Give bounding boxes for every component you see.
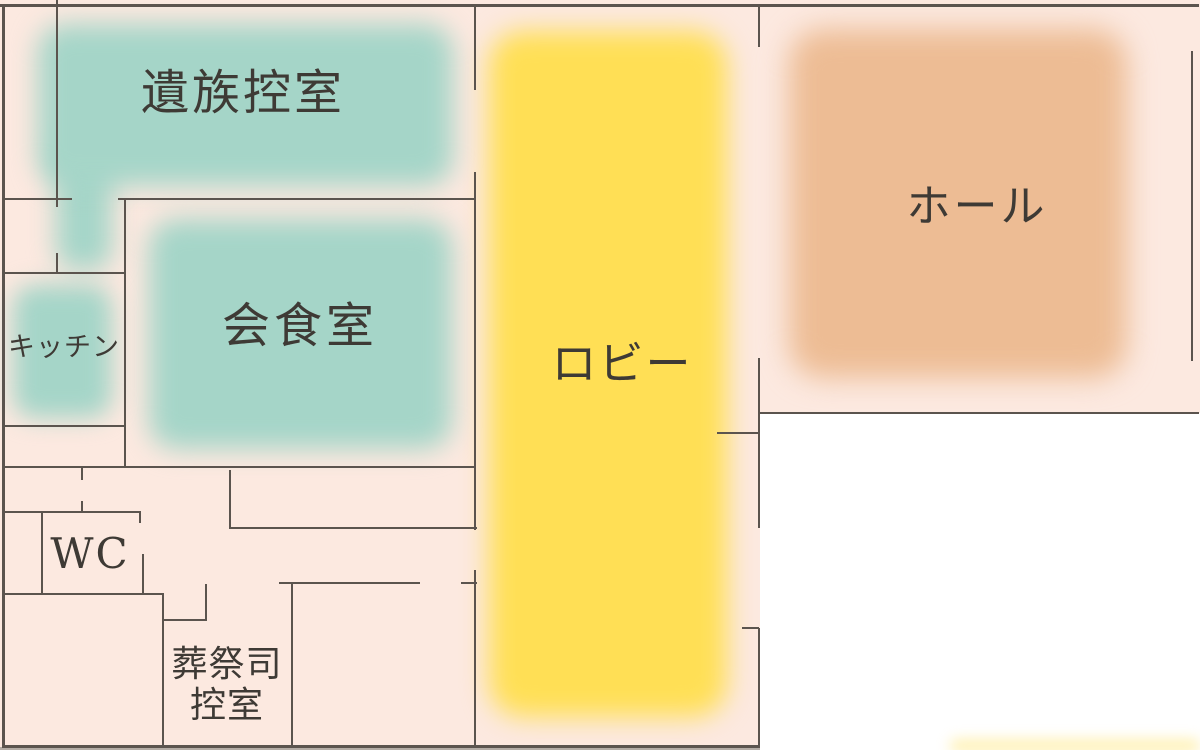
wall-segment xyxy=(205,584,207,621)
wall-segment xyxy=(2,272,126,274)
wall-segment xyxy=(2,593,164,595)
room-label-lobby: ロビー xyxy=(500,339,744,389)
room-label-kaishokushitsu: 会食室 xyxy=(150,300,450,353)
wall-segment xyxy=(162,619,207,621)
wall-segment xyxy=(229,470,231,529)
room-label-izoku-hikaeshitsu: 遺族控室 xyxy=(98,67,388,120)
wall-segment xyxy=(758,628,760,747)
room-label-sousaishi-hikaeshitsu: 葬祭司 控室 xyxy=(152,644,302,727)
wall-segment xyxy=(0,4,1199,7)
wall-segment xyxy=(56,0,58,207)
wall-segment xyxy=(474,4,476,90)
room-label-kitchen: キッチン xyxy=(0,333,128,363)
wall-segment xyxy=(742,627,759,629)
wall-segment xyxy=(474,172,476,530)
room-label-hall: ホール xyxy=(850,183,1104,231)
wall-segment xyxy=(142,554,144,595)
wall-segment xyxy=(2,4,5,747)
floorplan-canvas: 遺族控室会食室キッチンWC 葬祭司 控室 ロビーホール xyxy=(0,0,1200,750)
wall-segment xyxy=(758,358,760,528)
wall-segment xyxy=(758,4,760,47)
wall-segment xyxy=(2,511,141,513)
wall-segment xyxy=(759,412,1199,414)
wall-segment xyxy=(118,198,476,200)
room-label-wc: WC xyxy=(40,531,140,577)
wall-segment xyxy=(139,511,141,523)
outside-area xyxy=(760,413,1200,750)
wall-segment xyxy=(81,466,83,480)
wall-segment xyxy=(229,527,477,529)
wall-segment xyxy=(2,198,72,200)
wall-segment xyxy=(2,425,126,427)
wall-segment xyxy=(2,745,760,748)
wall-segment xyxy=(717,432,759,434)
sousaishi-line1: 葬祭司 xyxy=(171,644,282,685)
wall-segment xyxy=(56,253,58,274)
sousaishi-line2: 控室 xyxy=(190,685,264,726)
wall-segment xyxy=(279,582,420,584)
wall-segment xyxy=(2,466,476,468)
wall-segment xyxy=(1191,51,1193,361)
wall-segment xyxy=(474,570,476,747)
bottom-right-glow xyxy=(950,740,1200,750)
